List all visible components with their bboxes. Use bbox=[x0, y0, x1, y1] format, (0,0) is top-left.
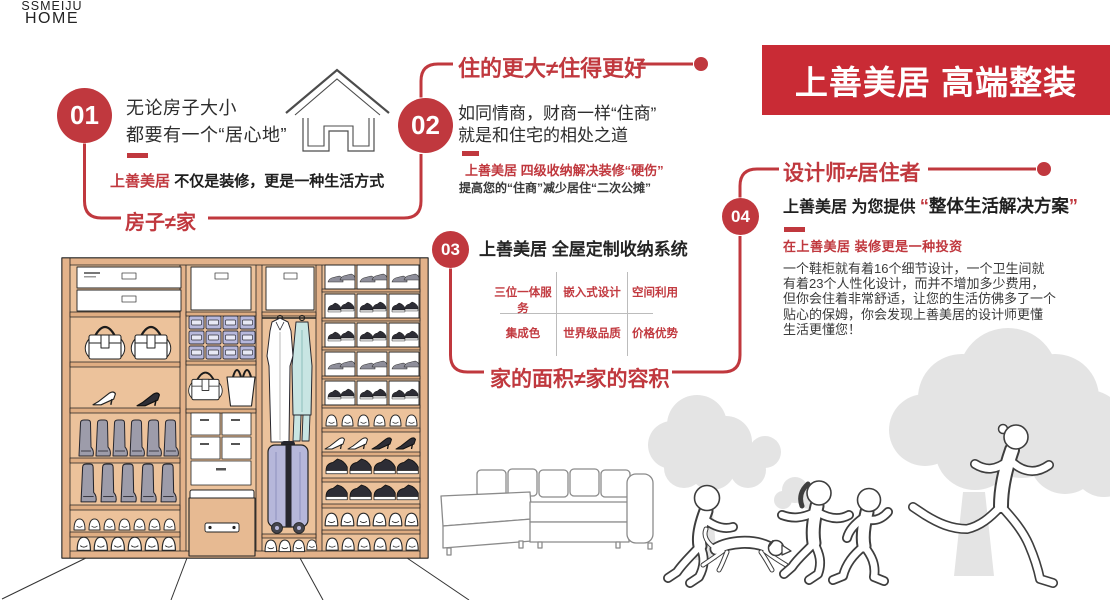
s1-tagline: 上善美居 不仅是装修，更是一种生活方式 bbox=[110, 170, 384, 191]
step-badge-01: 01 bbox=[57, 88, 112, 143]
house-logo-icon bbox=[286, 70, 389, 151]
section-divider-dash bbox=[462, 151, 479, 156]
grid-cell: 嵌入式设计 bbox=[557, 284, 627, 300]
section-divider-dash bbox=[784, 227, 805, 232]
s4-body-line: 贴心的保姆，你会发现上善美居的设计师更懂 bbox=[783, 307, 1056, 322]
s1-intro-line1: 无论房子大小 bbox=[126, 94, 237, 120]
s4-body-line: 生活更懂您！ bbox=[783, 322, 1056, 337]
connector-04-up bbox=[740, 169, 779, 198]
grid-cell: 世界级品质 bbox=[557, 325, 627, 341]
running-child-1 bbox=[668, 486, 733, 584]
connector-02-up bbox=[421, 64, 453, 98]
s4-sub-prefix: 上善美居 为您提供 bbox=[783, 199, 920, 216]
s2-body-line2: 就是和住宅的相处之道 bbox=[458, 121, 628, 146]
s4-title: 设计师≠居住者 bbox=[783, 157, 921, 187]
line-end-dot bbox=[694, 57, 708, 71]
floor-lines bbox=[2, 558, 469, 600]
shoe-boxes bbox=[325, 265, 419, 405]
step-badge-04: 04 bbox=[722, 198, 759, 235]
s4-red-note: 在上善美居 装修更是一种投资 bbox=[783, 236, 963, 255]
connector-03-down bbox=[451, 269, 485, 373]
s1-intro-line2: 都要有一个“居心地” bbox=[126, 121, 287, 147]
wardrobe-illustration bbox=[62, 258, 428, 558]
quote-open: “ bbox=[920, 196, 929, 216]
tree-silhouettes bbox=[648, 328, 1110, 576]
quote-close: ” bbox=[1069, 196, 1078, 216]
section-divider-dash bbox=[127, 153, 148, 158]
s4-sub-quoted: 整体生活解决方案 bbox=[929, 196, 1069, 216]
s2-red-note: 上善美居 四级收纳解决装修“硬伤” bbox=[465, 160, 664, 179]
grid-cell: 价格优势 bbox=[628, 325, 682, 341]
step-number: 01 bbox=[70, 100, 99, 131]
s4-body-line: 但你会住着非常舒适，让您的生活仿佛多了一个 bbox=[783, 291, 1056, 306]
s3-title: 上善美居 全屋定制收纳系统 bbox=[479, 235, 688, 260]
s2-title: 住的更大≠住得更好 bbox=[458, 51, 646, 83]
step-badge-03: 03 bbox=[432, 231, 469, 268]
s2-gray-note: 提高您的“住商”减少居住“二次公摊” bbox=[459, 179, 651, 196]
step-number: 03 bbox=[441, 240, 460, 260]
step-badge-02: 02 bbox=[398, 98, 453, 153]
grid-cell: 三位一体服务 bbox=[490, 284, 556, 316]
step-number: 04 bbox=[731, 207, 750, 227]
suitcase bbox=[268, 441, 308, 534]
brand-banner-title: 上善美居 高端整装 bbox=[795, 56, 1077, 104]
s4-body-line: 一个鞋柜就有着16个细节设计，一个卫生间就 bbox=[783, 261, 1056, 276]
grid-cell: 集成色 bbox=[490, 325, 556, 341]
s3-keyword: 家的面积≠家的容积 bbox=[490, 363, 670, 393]
s4-subtitle: 上善美居 为您提供 “整体生活解决方案” bbox=[783, 193, 1078, 218]
s1-tagline-text: 不仅是装修，更是一种生活方式 bbox=[174, 173, 384, 190]
sofa-illustration bbox=[441, 469, 653, 555]
poster-canvas: 上善美居 高端整装 01 02 03 04 SSMEIJU HOME 无论房子大… bbox=[0, 0, 1110, 600]
running-dog bbox=[703, 529, 791, 570]
s4-body-paragraph: 一个鞋柜就有着16个细节设计，一个卫生间就 有着23个人性化设计，而并不增加多少… bbox=[783, 261, 1056, 337]
brand-banner: 上善美居 高端整装 bbox=[762, 45, 1110, 115]
bench-ottoman bbox=[189, 490, 255, 556]
line-end-dot bbox=[1037, 162, 1051, 176]
s3-feature-grid: 三位一体服务 嵌入式设计 空间利用 集成色 世界级品质 价格优势 bbox=[490, 272, 682, 356]
running-child-3 bbox=[833, 489, 888, 582]
s1-keyword: 房子≠家 bbox=[125, 206, 196, 235]
grid-cell: 空间利用 bbox=[628, 284, 682, 300]
step-number: 02 bbox=[411, 110, 440, 141]
hanging-coat bbox=[267, 316, 293, 443]
s4-body-line: 有着23个人性化设计，而并不增加多少费用， bbox=[783, 276, 1056, 291]
brand-name: 上善美居 bbox=[110, 173, 170, 190]
